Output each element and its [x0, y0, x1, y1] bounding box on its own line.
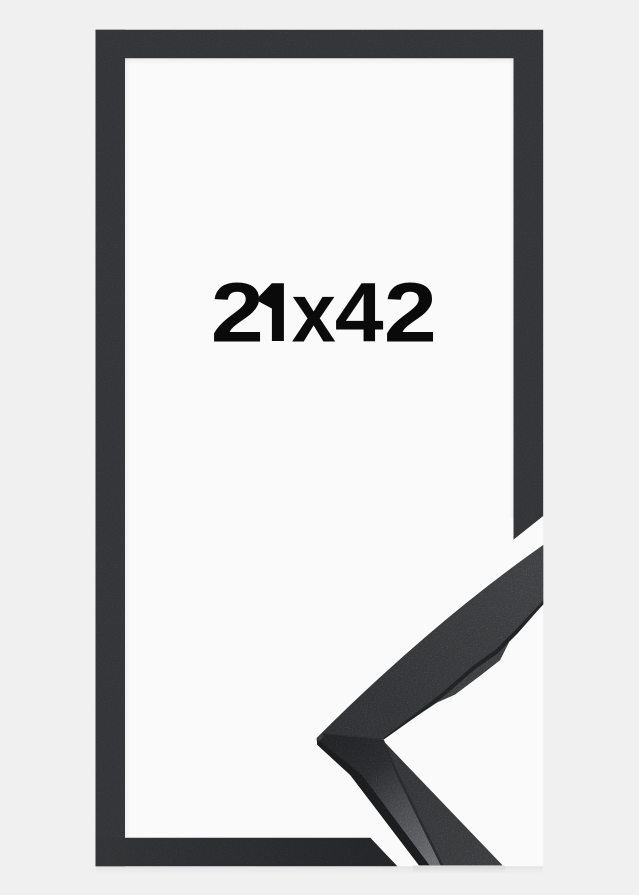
svg-text:2: 2	[211, 267, 264, 360]
svg-text:x: x	[292, 266, 336, 359]
svg-text:2: 2	[384, 267, 437, 360]
svg-text:4: 4	[335, 266, 384, 360]
